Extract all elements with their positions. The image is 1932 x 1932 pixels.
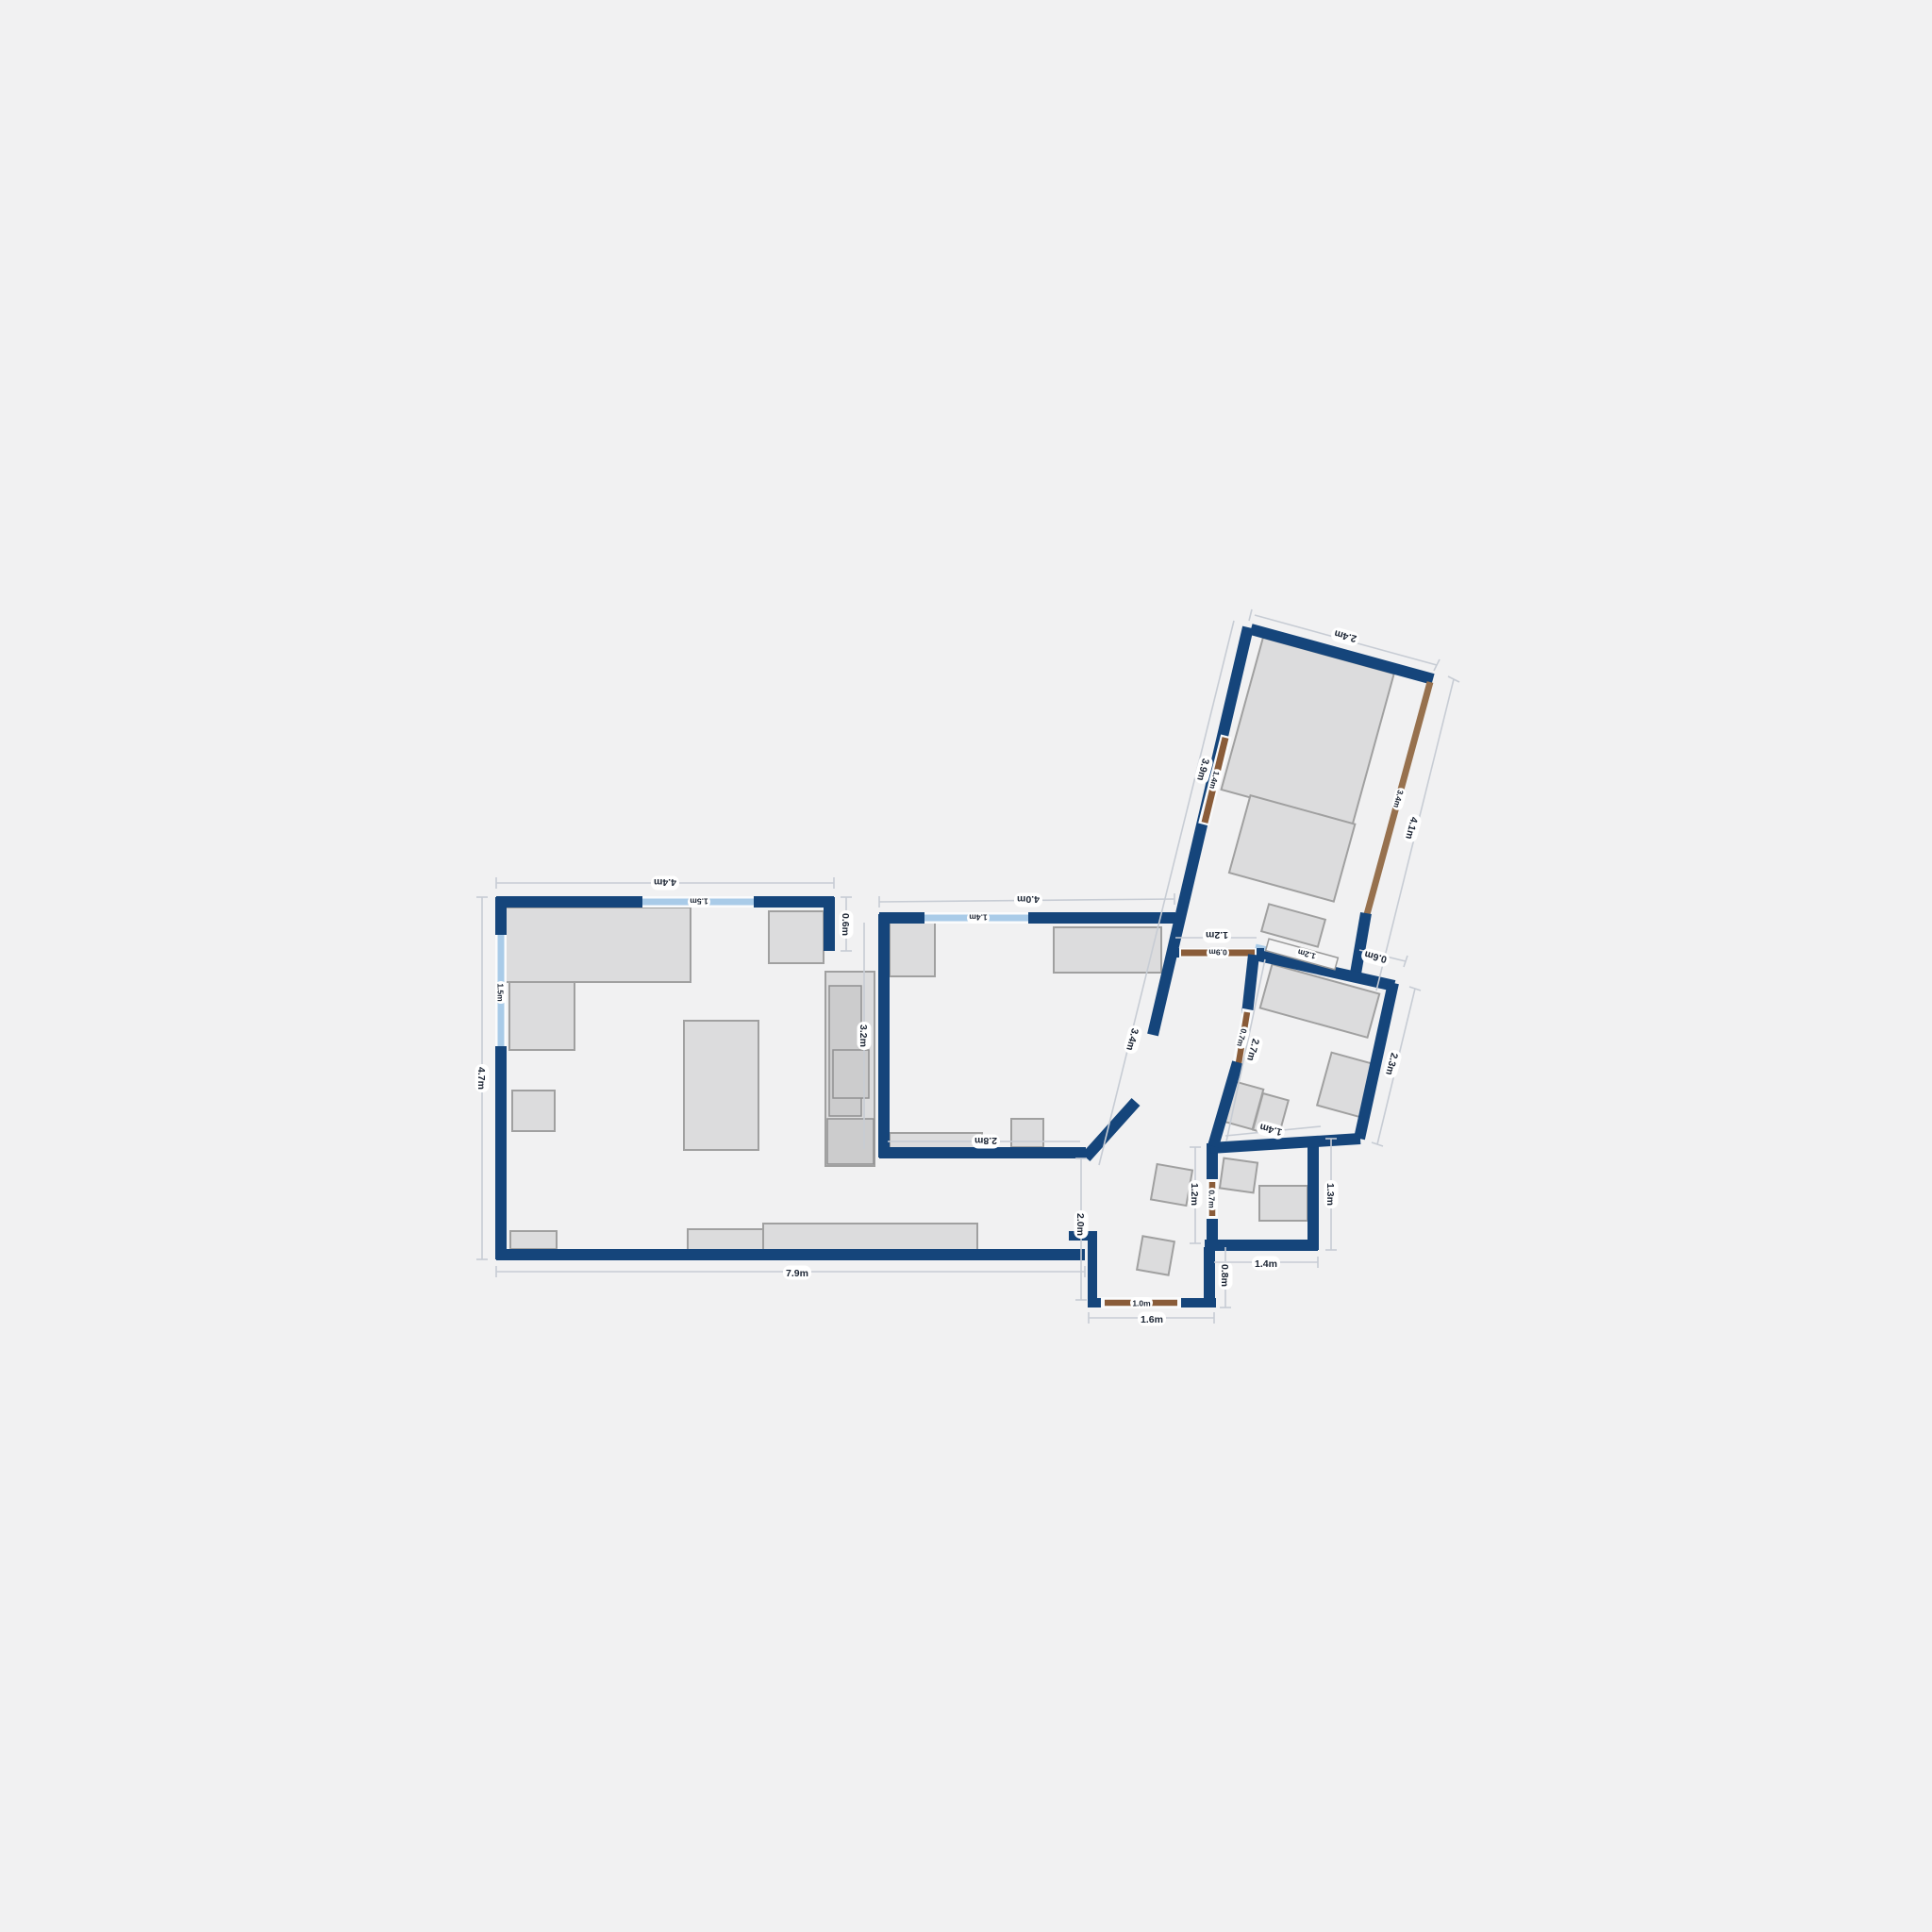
svg-text:1.5m: 1.5m — [690, 897, 708, 907]
svg-text:1.3m: 1.3m — [1324, 1183, 1336, 1206]
svg-text:0.6m: 0.6m — [840, 913, 851, 936]
svg-text:1.4m: 1.4m — [969, 913, 988, 923]
svg-text:1.4m: 1.4m — [1255, 1258, 1277, 1270]
svg-text:1.2m: 1.2m — [1206, 929, 1228, 941]
svg-text:1.5m: 1.5m — [496, 983, 506, 1002]
svg-text:4.4m: 4.4m — [654, 876, 676, 888]
svg-text:7.9m: 7.9m — [786, 1268, 808, 1279]
svg-text:1.0m: 1.0m — [1132, 1299, 1151, 1308]
svg-text:4.0m: 4.0m — [1017, 893, 1040, 905]
svg-text:2.8m: 2.8m — [974, 1135, 997, 1146]
svg-text:4.7m: 4.7m — [475, 1067, 487, 1090]
svg-text:1.2m: 1.2m — [1189, 1183, 1200, 1206]
svg-text:3.2m: 3.2m — [858, 1024, 869, 1047]
svg-text:0.8m: 0.8m — [1219, 1264, 1230, 1287]
svg-text:2.0m: 2.0m — [1074, 1213, 1086, 1236]
svg-text:0.7m: 0.7m — [1207, 1190, 1217, 1208]
svg-text:0.9m: 0.9m — [1208, 948, 1227, 958]
svg-text:1.6m: 1.6m — [1141, 1314, 1163, 1325]
